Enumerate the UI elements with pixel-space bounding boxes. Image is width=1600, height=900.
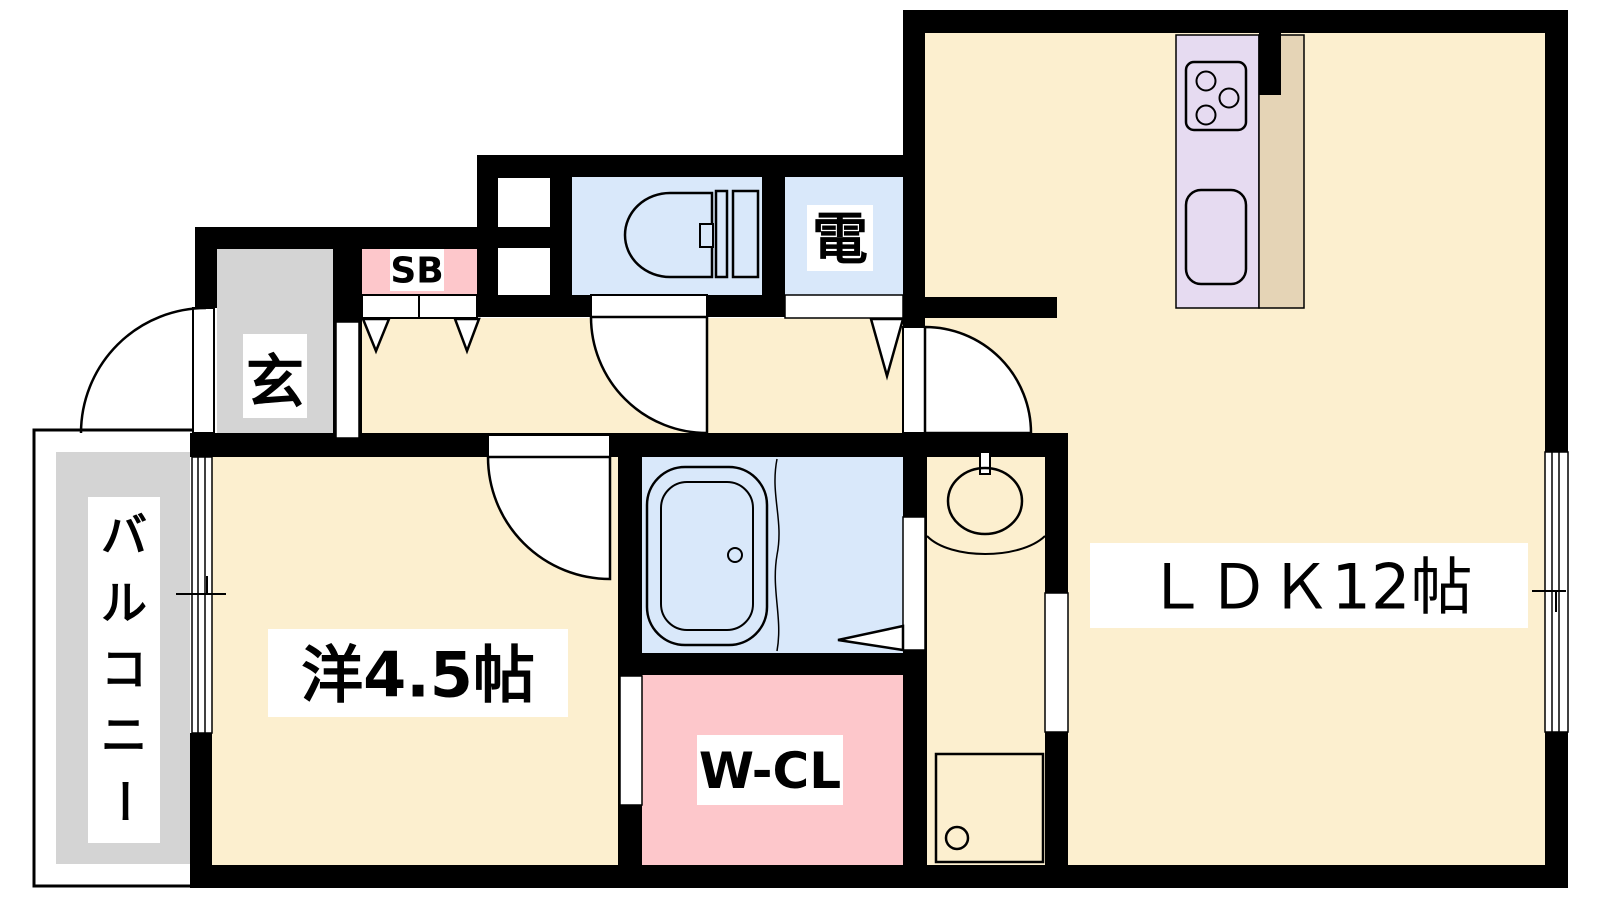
front-door-leaf xyxy=(193,308,214,433)
walk-in-closet-label: W-CL xyxy=(699,742,841,800)
toilet-door-leaf xyxy=(591,295,707,317)
wall-kitchen-stub xyxy=(1259,33,1281,95)
western-room-label: 洋4.5帖 xyxy=(301,639,535,712)
floor-plan-canvas: 玄 SB 電 バ ル コ ニ ー 洋4.5帖 W-CL ＬＤＫ12帖 xyxy=(0,0,1600,900)
shoe-box-label: SB xyxy=(390,251,443,292)
wall-right-outer xyxy=(1545,10,1568,888)
svg-text:バ: バ xyxy=(101,508,147,562)
ldk-label: ＬＤＫ12帖 xyxy=(1146,551,1473,624)
electric-closet-front xyxy=(785,295,903,318)
front-door-arc xyxy=(81,308,206,433)
svg-text:ニ: ニ xyxy=(101,708,147,762)
svg-text:コ: コ xyxy=(101,642,147,696)
washroom-ldk-opening xyxy=(1045,593,1068,732)
wall-western-left-lower xyxy=(190,733,212,865)
wall-bath-bottom xyxy=(618,653,927,675)
wall-entrance-left xyxy=(195,249,217,308)
wall-toilet-right xyxy=(762,177,785,317)
electric-label: 電 xyxy=(812,208,868,273)
bath-door-opening xyxy=(903,517,925,650)
wall-hallway-bottom xyxy=(190,433,1068,457)
western-room-door-leaf xyxy=(488,435,610,457)
svg-text:ー: ー xyxy=(97,778,151,824)
bath-floor xyxy=(641,457,903,653)
wall-bottom-outer xyxy=(190,865,1568,888)
floor-plan: 玄 SB 電 バ ル コ ニ ー 洋4.5帖 W-CL ＬＤＫ12帖 xyxy=(0,0,1600,900)
entrance-label: 玄 xyxy=(246,348,304,416)
ldk-door-leaf xyxy=(903,327,925,433)
svg-text:ル: ル xyxy=(101,576,147,630)
wall-ldk-top xyxy=(903,10,1568,33)
meter-box-niche-lower xyxy=(498,248,550,295)
meter-box-niche-upper xyxy=(498,178,550,227)
wall-ldk-stub xyxy=(925,297,1057,318)
wall-toilet-bottom-left xyxy=(572,295,591,317)
wall-toilet-bottom-right xyxy=(707,295,762,317)
entrance-hall-opening xyxy=(336,322,359,438)
wall-ldk-left-upper xyxy=(903,33,925,327)
walk-in-closet-opening xyxy=(620,676,642,805)
wall-toilet-top xyxy=(572,155,925,177)
